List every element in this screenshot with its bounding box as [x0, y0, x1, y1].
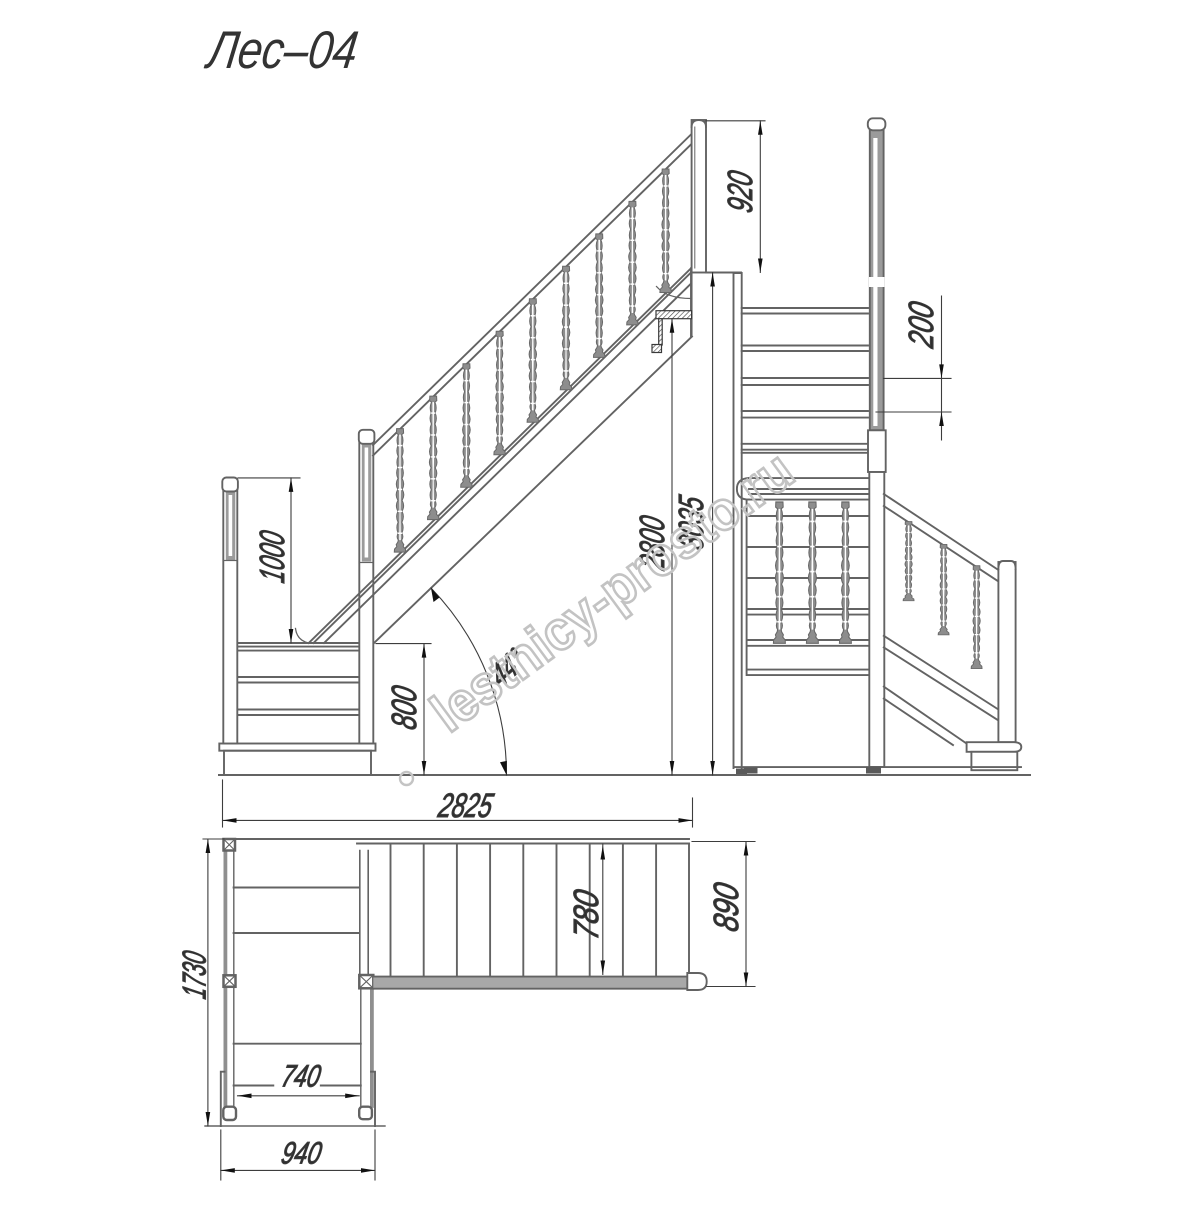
svg-text:2825: 2825	[435, 787, 497, 825]
svg-text:1000: 1000	[253, 527, 292, 585]
svg-text:890: 890	[707, 879, 746, 934]
svg-text:1730: 1730	[177, 948, 214, 1002]
svg-text:200: 200	[902, 298, 941, 351]
svg-text:Лес–04: Лес–04	[202, 21, 362, 80]
svg-text:940: 940	[279, 1136, 326, 1171]
svg-text:740: 740	[279, 1059, 325, 1094]
svg-text:920: 920	[721, 167, 760, 215]
svg-text:800: 800	[385, 682, 424, 732]
svg-text:780: 780	[567, 886, 606, 942]
